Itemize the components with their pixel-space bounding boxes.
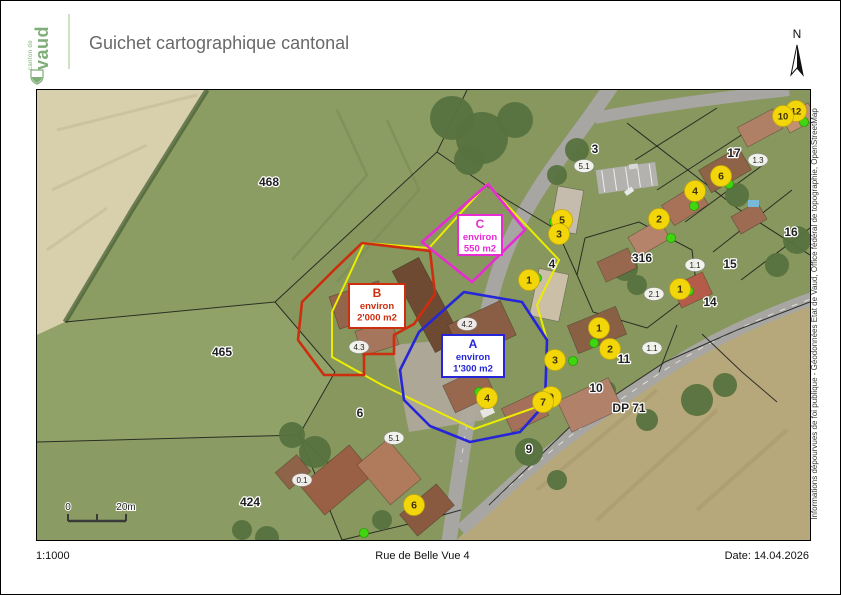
parcel-number-label: DP 71 xyxy=(612,401,645,415)
parcel-number-label: 6 xyxy=(357,406,364,420)
poi-marker: 3 xyxy=(545,350,566,371)
building-label: 5.1 xyxy=(574,160,594,173)
tree xyxy=(765,253,789,277)
building-label-text: 1.3 xyxy=(752,156,764,165)
parcel-number-label: 15 xyxy=(723,257,737,271)
field-465 xyxy=(37,302,335,442)
parcel-number-label: 3 xyxy=(592,142,599,156)
tree xyxy=(497,102,533,138)
building-label-text: 1.1 xyxy=(646,344,658,353)
poi-marker-number: 2 xyxy=(656,214,662,226)
poi-marker-number: 3 xyxy=(552,355,558,367)
building-label: 5.1 xyxy=(384,432,404,445)
tree xyxy=(713,373,737,397)
north-arrow-icon xyxy=(789,43,805,79)
parcel-number-label: 465 xyxy=(212,345,232,359)
poi-marker-number: 1 xyxy=(526,275,532,287)
poi-marker-number: 4 xyxy=(692,186,698,198)
green-dot xyxy=(667,234,676,243)
parcel-number-label: 316 xyxy=(632,251,652,265)
poi-marker: 6 xyxy=(711,166,732,187)
green-dot xyxy=(590,339,599,348)
tree xyxy=(681,384,713,416)
print-page: canton de vaud Guichet cartographique ca… xyxy=(0,0,841,595)
north-label: N xyxy=(785,27,809,41)
building-label: 1.1 xyxy=(642,342,662,355)
poi-marker-number: 1 xyxy=(596,323,602,335)
tree xyxy=(454,145,484,175)
parcel-number-label: 468 xyxy=(259,175,279,189)
building-label-text: 2.1 xyxy=(648,290,660,299)
tree xyxy=(627,275,647,295)
parcel-number-label: 10 xyxy=(589,381,603,395)
zone-C-label: Cenviron550 m2 xyxy=(458,215,502,255)
map-date: Date: 14.04.2026 xyxy=(725,550,809,562)
vaud-logo: canton de vaud xyxy=(27,9,57,79)
zone-label-line: environ xyxy=(360,301,395,312)
scalebar-end-label: 20m xyxy=(116,502,135,513)
tree xyxy=(565,138,589,162)
zone-label-line: B xyxy=(373,286,382,300)
vaud-shield-icon xyxy=(30,69,44,85)
poi-marker-number: 6 xyxy=(718,171,724,183)
building-label: 0.1 xyxy=(292,474,312,487)
green-dot xyxy=(360,529,369,538)
building-label-text: 4.3 xyxy=(353,343,365,352)
page-title: Guichet cartographique cantonal xyxy=(89,33,349,54)
parcel-number-label: 4 xyxy=(549,257,556,271)
map-attribution: Informations dépourvues de foi publique … xyxy=(810,84,822,544)
poi-marker: 1 xyxy=(670,279,691,300)
poi-marker-number: 2 xyxy=(607,344,613,356)
tree xyxy=(232,520,252,540)
zone-A-label: Aenviron1'300 m2 xyxy=(442,335,504,377)
header-divider xyxy=(68,14,70,69)
poi-marker: 3 xyxy=(549,224,570,245)
logo-vaud: vaud xyxy=(34,8,51,70)
green-dot xyxy=(569,357,578,366)
poi-marker-number: 7 xyxy=(540,397,546,409)
parcel-number-label: 9 xyxy=(526,442,533,456)
poi-marker: 10 xyxy=(773,106,794,127)
poi-marker-number: 4 xyxy=(484,393,490,405)
poi-marker-number: 1 xyxy=(677,284,683,296)
building-label: 1.3 xyxy=(748,154,768,167)
building-label: 4.3 xyxy=(349,341,369,354)
poi-marker-number: 10 xyxy=(778,112,789,123)
map-canvas: 1210642531112397465.11.31.12.11.15.14.34… xyxy=(36,89,811,541)
scalebar-start-label: 0 xyxy=(65,502,71,513)
parcel-number-label: 424 xyxy=(240,495,260,509)
building-label: 1.1 xyxy=(685,259,705,272)
map-footer: 1:1000 Rue de Belle Vue 4 Date: 14.04.20… xyxy=(36,550,809,566)
building-label-text: 4.2 xyxy=(461,320,473,329)
map-address: Rue de Belle Vue 4 xyxy=(36,550,809,562)
poi-marker: 4 xyxy=(477,388,498,409)
pool xyxy=(748,200,759,207)
zone-label-line: environ xyxy=(456,352,491,363)
poi-marker: 1 xyxy=(519,270,540,291)
zone-label-line: 1'300 m2 xyxy=(453,364,493,375)
poi-marker: 4 xyxy=(685,181,706,202)
zone-label-line: environ xyxy=(463,232,498,243)
zone-B-label: Benviron2'000 m2 xyxy=(349,284,405,328)
building-label-text: 5.1 xyxy=(578,162,590,171)
poi-marker: 7 xyxy=(533,392,554,413)
poi-marker: 2 xyxy=(649,209,670,230)
green-dot xyxy=(690,202,699,211)
parcel-number-label: 17 xyxy=(727,146,741,160)
tree xyxy=(372,510,392,530)
poi-marker-number: 3 xyxy=(556,229,562,241)
building-label-text: 5.1 xyxy=(388,434,400,443)
parcel-number-label: 16 xyxy=(784,225,798,239)
tree xyxy=(547,470,567,490)
building-label-text: 0.1 xyxy=(296,476,308,485)
poi-marker-number: 6 xyxy=(411,500,417,512)
poi-marker: 1 xyxy=(589,318,610,339)
parcel-number-label: 14 xyxy=(703,295,717,309)
poi-marker: 6 xyxy=(404,495,425,516)
zone-label-line: C xyxy=(476,217,485,231)
field-424 xyxy=(37,435,342,540)
building-label-text: 1.1 xyxy=(689,261,701,270)
tree xyxy=(547,165,567,185)
parcel-number-label: 11 xyxy=(618,352,631,366)
zone-label-line: 2'000 m2 xyxy=(357,313,397,324)
zone-label-line: A xyxy=(469,337,478,351)
zone-label-line: 550 m2 xyxy=(464,244,496,255)
building-label: 2.1 xyxy=(644,288,664,301)
building-label: 4.2 xyxy=(457,318,477,331)
vaud-logo-text: canton de vaud xyxy=(28,8,56,70)
